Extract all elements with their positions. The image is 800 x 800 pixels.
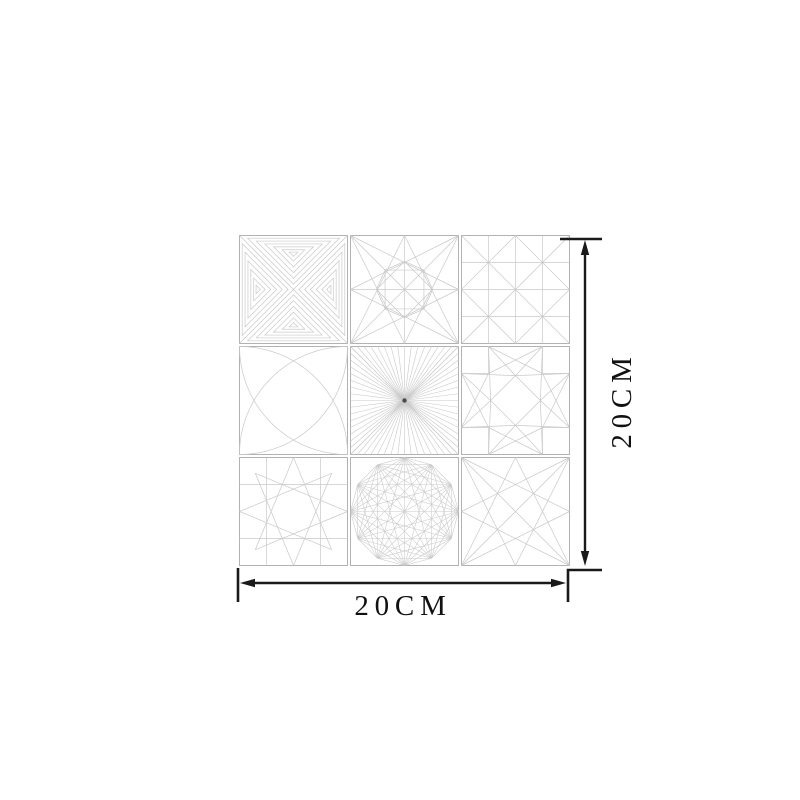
tile-pattern-grid-with-diagonals (462, 236, 570, 344)
tile-pattern-radial-sunburst (351, 347, 459, 455)
tile-sheet-diagram (0, 0, 800, 800)
tile-pattern-dodecagon-web (351, 458, 459, 566)
tile-pattern-octagram-on-grid (240, 458, 348, 566)
tile-pattern-corner-to-midpoint-star (462, 458, 570, 566)
tile-pattern-nested-triangle-maze (240, 236, 348, 344)
dimension-annotations (238, 239, 602, 602)
width-dimension-label: 20CM (328, 592, 478, 620)
tile-pattern-corner-arc-rosette (240, 347, 348, 455)
height-dimension-label: 20CM (608, 325, 636, 475)
tile-pattern-midpoint-fan-diamond (351, 236, 459, 344)
tile-pattern-notched-eight-point-star (462, 347, 570, 455)
product-image-canvas: 20CM 20CM (0, 0, 800, 800)
